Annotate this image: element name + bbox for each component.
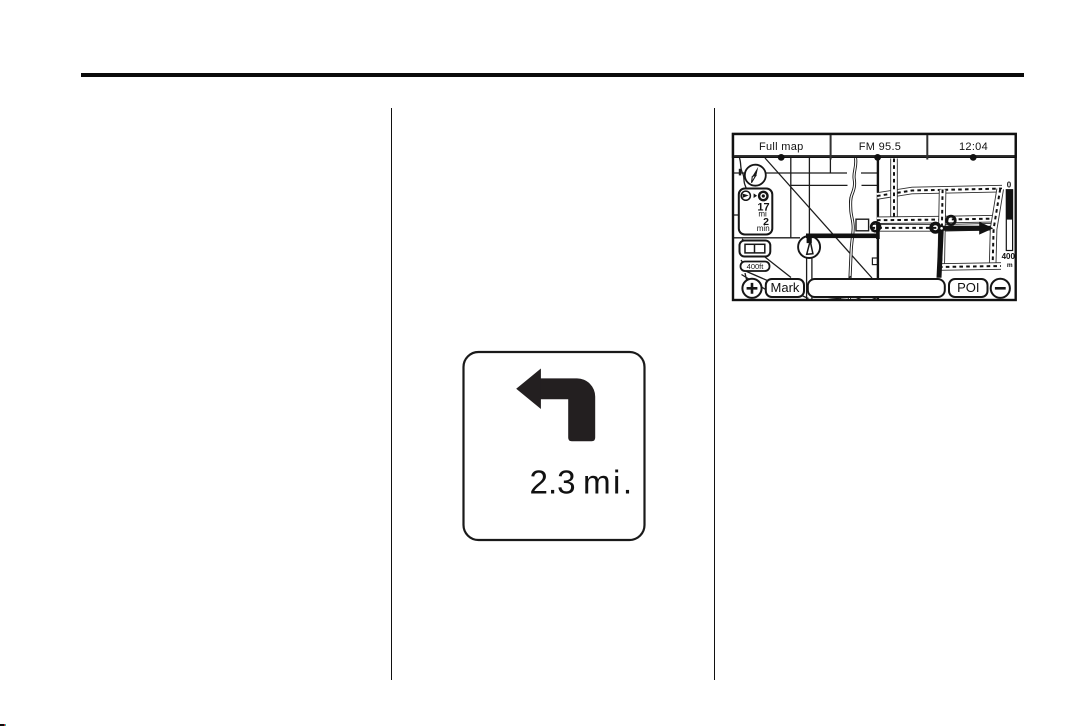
svg-text:Full map: Full map	[759, 141, 804, 153]
svg-text:400ft: 400ft	[747, 262, 765, 271]
svg-text:400: 400	[1002, 252, 1016, 261]
svg-text:FM 95.5: FM 95.5	[859, 141, 901, 153]
svg-text:min: min	[757, 224, 770, 233]
svg-text:Mark: Mark	[771, 280, 800, 295]
svg-text:2.3: 2.3	[530, 464, 576, 501]
svg-text:m: m	[1007, 262, 1013, 269]
svg-text:mi.: mi.	[583, 464, 634, 501]
svg-text:12:04: 12:04	[959, 141, 988, 153]
svg-text:0: 0	[1007, 181, 1012, 190]
svg-text:POI: POI	[957, 280, 979, 295]
